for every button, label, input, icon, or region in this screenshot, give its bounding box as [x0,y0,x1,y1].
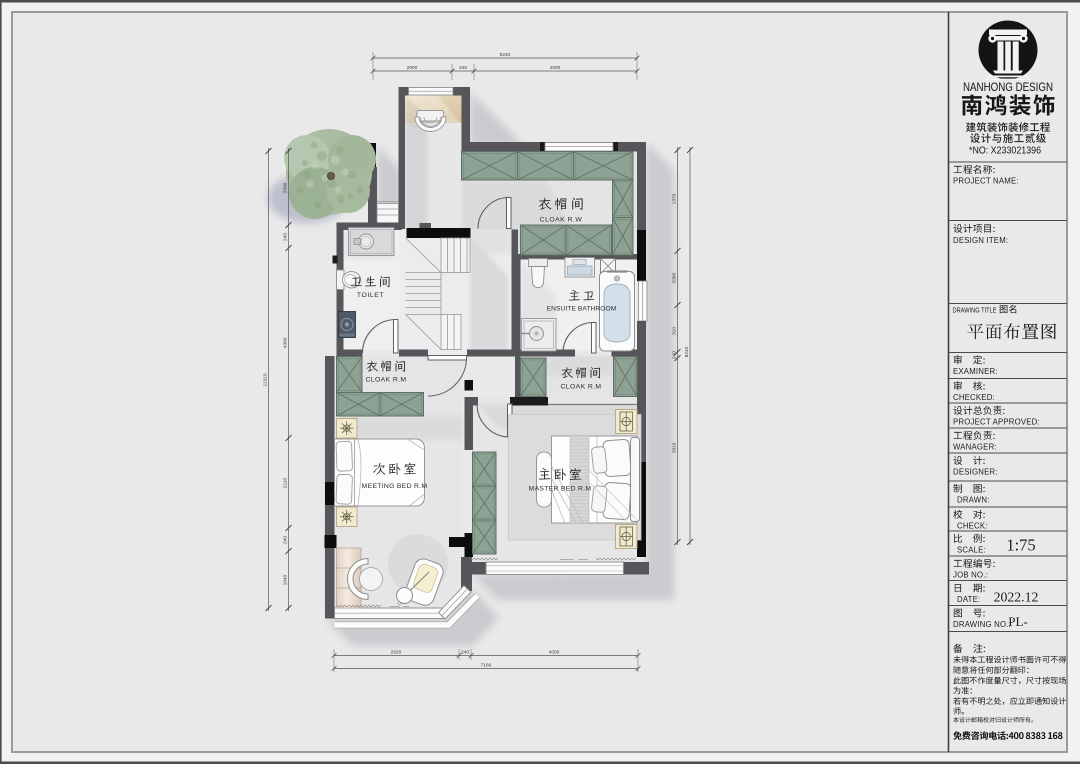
svg-text:4300: 4300 [283,337,289,348]
svg-text:WANAGER:: WANAGER: [953,443,997,452]
svg-text:2000: 2000 [407,65,418,71]
svg-text:2900: 2900 [283,182,289,193]
svg-text:PL-: PL- [1008,614,1028,629]
svg-text:2920: 2920 [391,650,402,656]
svg-text:2110: 2110 [283,478,289,489]
svg-text:SCALE:: SCALE: [957,546,986,555]
svg-text:310: 310 [672,327,678,335]
svg-text:8240: 8240 [500,52,511,58]
svg-text:240: 240 [283,233,289,241]
svg-text:MASTER BED R.M: MASTER BED R.M [529,486,592,493]
svg-text:CLOAK R.M: CLOAK R.M [366,377,407,384]
svg-text:240: 240 [461,650,469,656]
svg-text:2022.12: 2022.12 [994,590,1039,605]
svg-text:4000: 4000 [549,650,560,656]
svg-text:CLOAK R.W: CLOAK R.W [540,217,583,224]
svg-text:DATE:: DATE: [957,595,980,604]
svg-text:JOB NO.:: JOB NO.: [953,571,988,580]
svg-text:DESIGN ITEM:: DESIGN ITEM: [953,236,1008,245]
svg-text:4000: 4000 [550,65,561,71]
svg-text:PROJECT APPROVED:: PROJECT APPROVED: [953,418,1040,427]
svg-text:11310: 11310 [263,373,269,386]
svg-text:1040: 1040 [283,574,289,585]
svg-text:ENSUITE BATHROOM: ENSUITE BATHROOM [547,306,617,313]
svg-text:CHECKED:: CHECKED: [953,393,995,402]
svg-text:EXAMINER:: EXAMINER: [953,367,998,376]
svg-text:1370: 1370 [672,193,678,204]
svg-text:240: 240 [283,536,289,544]
svg-text:2810: 2810 [672,442,678,453]
svg-text:DESIGNER:: DESIGNER: [953,468,998,477]
svg-text:7160: 7160 [481,663,492,669]
svg-text:DRAWING NO.:: DRAWING NO.: [953,620,1011,629]
svg-text:240: 240 [672,351,678,359]
svg-text:CHECK:: CHECK: [957,522,988,531]
svg-text:2080: 2080 [672,272,678,283]
svg-text:CLOAK R.M: CLOAK R.M [561,384,602,391]
svg-text:1:75: 1:75 [1006,536,1035,555]
svg-text:NANHONG DESIGN: NANHONG DESIGN [963,80,1053,94]
svg-text:DRAWN:: DRAWN: [957,496,990,505]
svg-text:240: 240 [459,65,467,71]
svg-text:*NO: X233021396: *NO: X233021396 [969,146,1041,157]
svg-text:DRAWING TITLE: DRAWING TITLE [953,306,997,315]
svg-text:PROJECT NAME:: PROJECT NAME: [953,177,1019,186]
svg-text:MEETING BED R.M: MEETING BED R.M [362,483,428,490]
svg-text:8240: 8240 [684,346,690,357]
svg-text:TOILET: TOILET [357,292,384,299]
